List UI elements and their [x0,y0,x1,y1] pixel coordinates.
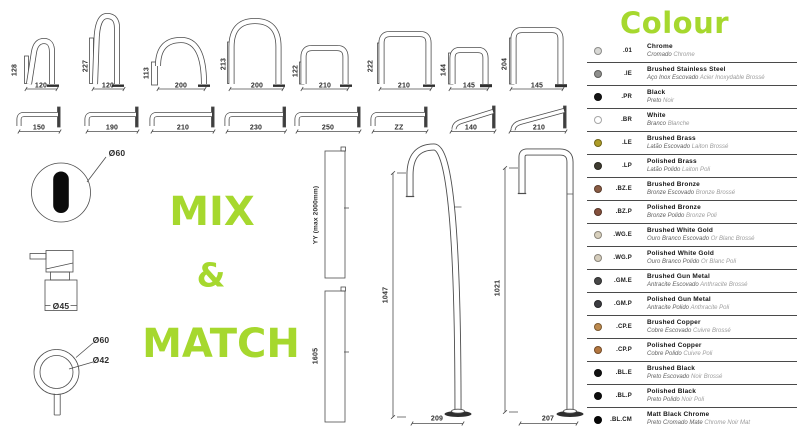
colour-code: .BZ.E [606,186,632,192]
colour-subtitle: Ouro Branco Polido Or Blanc Poli [647,259,736,267]
colour-row-gme: .GM.E Brushed Gun Metal Antracite Escova… [587,270,797,293]
colour-name-fr: Blanche [668,121,690,127]
colour-subtitle: Ouro Branco Escovado Or Blanc Brossé [647,236,754,244]
colour-swatch [594,185,602,193]
dim-wall-spout-5: 250 [322,124,334,131]
top-spout-2-drawing [90,16,126,91]
colour-row-gmp: .GM.P Polished Gun Metal Antracite Polid… [587,293,797,316]
colour-subtitle: Cromado Chrome [647,52,695,60]
dim-sensor-diameter: Ø60 [109,148,126,158]
colour-name-fr: Chrome Noir Mat [704,420,750,426]
handle-top-view-drawing [34,343,93,415]
colour-code: .IE [606,71,632,77]
colour-row-bzp: .BZ.P Polished Bronze Bronze Polido Bron… [587,201,797,224]
colour-code: .LE [606,140,632,146]
colour-swatch [594,277,602,285]
colour-row-wge: .WG.E Brushed White Gold Ouro Branco Esc… [587,224,797,247]
colour-name-pt: Cobre Polido [647,351,682,357]
colour-swatch [594,323,602,331]
colour-code: .BZ.P [606,209,632,215]
dim-freestanding-1-height: 1047 [383,287,390,303]
dim-top-spout-4-height: 213 [221,58,228,70]
colour-name-pt: Ouro Branco Polido [647,259,699,265]
dim-wall-spout-7: 140 [465,124,477,131]
colour-subtitle: Antracite Polido Anthracite Poli [647,305,729,313]
colour-name-fr: Laiton Brossé [692,144,729,150]
dim-top-spout-1-width: 120 [35,82,47,89]
colour-name-fr: Acier Inoxydable Brossé [700,75,765,81]
colour-name: Polished White Gold [647,250,736,258]
top-spout-4-drawing [228,21,286,91]
colour-row-blcm: .BL.CM Matt Black Chrome Preto Cromado M… [587,408,797,431]
colour-subtitle: Latão Polido Laiton Poli [647,167,710,175]
colour-subtitle: Preto Cromado Mate Chrome Noir Mat [647,420,750,428]
colour-name-pt: Ouro Branco Escovado [647,236,709,242]
dim-wall-spout-4: 230 [250,124,262,131]
colour-name: Brushed White Gold [647,227,754,235]
freestanding-spout-1-drawing [391,147,472,426]
colour-swatch [594,369,602,377]
colour-swatch [594,254,602,262]
riser-column-2-drawing [325,287,349,422]
colour-code: .GM.P [606,301,632,307]
dim-top-spout-8-width: 145 [531,82,543,89]
colour-name-fr: Bronze Brossé [696,190,735,196]
colour-code: .LP [606,163,632,169]
colour-row-ie: .IE Brushed Stainless Steel Aço Inox Esc… [587,63,797,86]
catalog-page: 128 120 227 120 113 200 213 200 122 210 … [0,0,800,434]
colour-swatch [594,208,602,216]
colour-swatch [594,93,602,101]
colour-subtitle: Preto Escovado Noir Brossé [647,374,722,382]
dim-top-spout-7-width: 145 [463,82,475,89]
colour-subtitle: Branco Blanche [647,121,689,129]
colour-subtitle: Preto Polido Noir Poli [647,397,704,405]
colour-row-ble: .BL.E Brushed Black Preto Escovado Noir … [587,362,797,385]
riser-column-1-drawing [325,147,349,278]
colour-swatch [594,47,602,55]
colour-subtitle: Cobre Escovado Cuivre Brossé [647,328,731,336]
colour-code: .BL.E [606,370,632,376]
colour-name: Polished Copper [647,342,712,350]
colour-swatch [594,392,602,400]
colour-name-pt: Preto [647,98,661,104]
dim-wall-spout-8: 210 [533,124,545,131]
colour-subtitle: Bronze Polido Bronze Poli [647,213,717,221]
colour-name: Brushed Bronze [647,181,735,189]
colour-name-fr: Or Blanc Poli [701,259,736,265]
colour-swatch [594,116,602,124]
dim-top-spout-3-width: 200 [175,82,187,89]
colour-code: .PR [606,94,632,100]
colour-name: Brushed Black [647,365,722,373]
freestanding-spout-2-drawing [503,152,584,426]
hero-text-mix: MIX [169,192,255,232]
dim-top-spout-5-width: 210 [319,82,331,89]
colour-subtitle: Bronze Escovado Bronze Brossé [647,190,735,198]
colour-name-pt: Branco [647,121,666,127]
colour-name-pt: Cobre Escovado [647,328,691,334]
dim-top-spout-5-height: 122 [293,65,300,77]
colour-row-wgp: .WG.P Polished White Gold Ouro Branco Po… [587,247,797,270]
dim-top-spout-6-width: 210 [398,82,410,89]
dim-top-spout-7-height: 144 [441,64,448,76]
colour-code: .BR [606,117,632,123]
dim-riser-2-length: 1605 [313,348,320,364]
colour-name: Polished Gun Metal [647,296,729,304]
colour-subtitle: Cobre Polido Cuivre Poli [647,351,712,359]
colour-subtitle: Latão Escovado Laiton Brossé [647,144,728,152]
colour-name-pt: Latão Polido [647,167,680,173]
colour-swatch [594,70,602,78]
colour-name-fr: Anthracite Brossé [700,282,747,288]
sensor-faceplate-drawing [32,157,107,222]
colour-row-cpe: .CP.E Brushed Copper Cobre Escovado Cuiv… [587,316,797,339]
dim-handle-inner-diameter: Ø42 [93,355,110,365]
dim-riser-1-length: YY (max 2000mm) [313,186,320,245]
colour-name-pt: Cromado [647,52,672,58]
colour-row-01: .01 Chrome Cromado Chrome [587,40,797,63]
colour-code: .CP.E [606,324,632,330]
colour-name-pt: Preto Polido [647,397,680,403]
dim-top-spout-3-height: 113 [144,67,151,79]
colour-name-pt: Aço Inox Escovado [647,75,698,81]
dim-top-spout-2-width: 120 [102,82,114,89]
colour-name: Polished Bronze [647,204,717,212]
colour-row-lp: .LP Polished Brass Latão Polido Laiton P… [587,155,797,178]
colour-swatch [594,231,602,239]
hero-text-match: MATCH [142,324,300,364]
colour-name-pt: Preto Cromado Mate [647,420,703,426]
colour-name: Chrome [647,43,695,51]
colour-name-fr: Bronze Poli [686,213,717,219]
colour-legend-title: Colour [620,6,729,40]
colour-swatch [594,416,602,424]
colour-name-fr: Noir [663,98,674,104]
colour-name-fr: Noir Poli [681,397,704,403]
dim-wall-spout-1: 150 [33,124,45,131]
colour-name-fr: Cuivre Brossé [693,328,731,334]
dim-mixer-diameter: Ø45 [53,301,70,311]
colour-row-pr: .PR Black Preto Noir [587,86,797,109]
colour-name-fr: Noir Brossé [691,374,722,380]
colour-code: .WG.P [606,255,632,261]
colour-name-fr: Anthracite Poli [690,305,729,311]
dim-handle-outer-diameter: Ø60 [93,335,110,345]
dim-top-spout-2-height: 227 [83,60,90,72]
colour-name-pt: Latão Escovado [647,144,690,150]
colour-code: .GM.E [606,278,632,284]
dim-freestanding-2-height: 1021 [495,280,502,296]
dim-freestanding-2-width: 207 [542,416,554,423]
colour-code: .BL.P [606,393,632,399]
colour-name: Brushed Gun Metal [647,273,748,281]
colour-name-pt: Bronze Polido [647,213,684,219]
technical-line-art [0,0,600,434]
colour-name-pt: Preto Escovado [647,374,689,380]
colour-name-fr: Cuivre Poli [683,351,712,357]
colour-row-cpp: .CP.P Polished Copper Cobre Polido Cuivr… [587,339,797,362]
colour-name: Brushed Brass [647,135,728,143]
colour-code: .01 [606,48,632,54]
colour-legend: .01 Chrome Cromado Chrome .IE Brushed St… [587,40,797,431]
dim-wall-spout-6: ZZ [395,124,404,131]
colour-subtitle: Preto Noir [647,98,674,106]
colour-code: .CP.P [606,347,632,353]
colour-name-fr: Chrome [673,52,694,58]
dim-wall-spout-2: 190 [106,124,118,131]
colour-name-fr: Laiton Poli [682,167,710,173]
colour-swatch [594,346,602,354]
colour-code: .WG.E [606,232,632,238]
colour-row-br: .BR White Branco Blanche [587,109,797,132]
dim-top-spout-8-height: 204 [502,58,509,70]
dim-top-spout-1-height: 128 [12,64,19,76]
colour-name-pt: Antracite Polido [647,305,689,311]
colour-name: Matt Black Chrome [647,411,750,419]
colour-name-pt: Antracite Escovado [647,282,699,288]
colour-name: White [647,112,689,120]
colour-name: Polished Black [647,388,704,396]
colour-subtitle: Antracite Escovado Anthracite Brossé [647,282,748,290]
colour-row-blp: .BL.P Polished Black Preto Polido Noir P… [587,385,797,408]
colour-name: Black [647,89,674,97]
colour-name-fr: Or Blanc Brossé [711,236,755,242]
colour-name: Brushed Stainless Steel [647,66,765,74]
dim-wall-spout-3: 210 [177,124,189,131]
colour-name: Brushed Copper [647,319,731,327]
colour-swatch [594,139,602,147]
hero-text-amp: & [197,259,226,292]
dim-top-spout-4-width: 200 [251,82,263,89]
colour-name-pt: Bronze Escovado [647,190,694,196]
colour-code: .BL.CM [606,417,632,423]
dim-top-spout-6-height: 222 [368,60,375,72]
colour-swatch [594,162,602,170]
dim-freestanding-1-width: 209 [431,416,443,423]
colour-name: Polished Brass [647,158,710,166]
colour-swatch [594,300,602,308]
colour-row-le: .LE Brushed Brass Latão Escovado Laiton … [587,132,797,155]
colour-row-bze: .BZ.E Brushed Bronze Bronze Escovado Bro… [587,178,797,201]
colour-subtitle: Aço Inox Escovado Acier Inoxydable Bross… [647,75,765,83]
